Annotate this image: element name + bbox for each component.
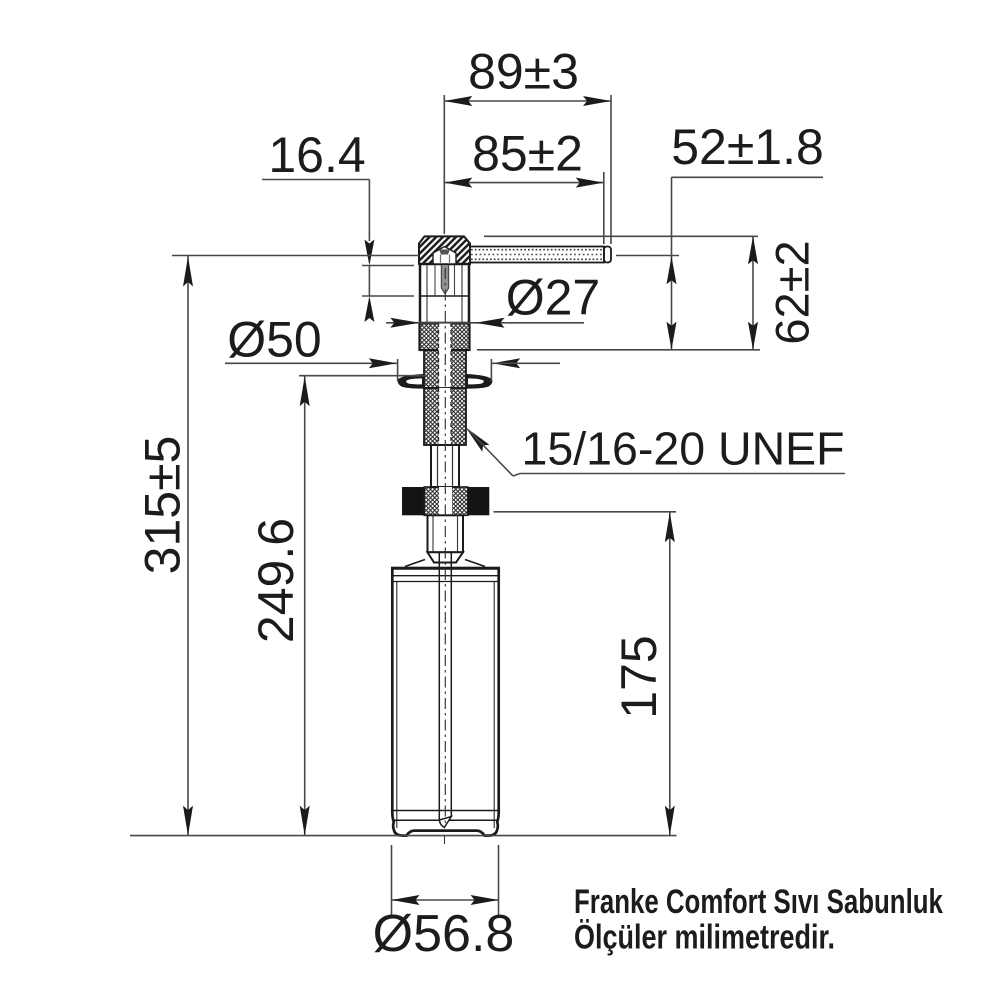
svg-text:15/16-20 UNEF: 15/16-20 UNEF (522, 423, 845, 475)
svg-text:Ø56.8: Ø56.8 (373, 905, 515, 963)
svg-text:249.6: 249.6 (248, 518, 304, 643)
svg-text:89±3: 89±3 (468, 44, 579, 100)
svg-text:175: 175 (611, 635, 667, 718)
svg-text:Ölçüler milimetredir.: Ölçüler milimetredir. (574, 917, 835, 956)
svg-text:315±5: 315±5 (135, 436, 191, 575)
svg-text:62±2: 62±2 (766, 240, 819, 344)
svg-text:Ø27: Ø27 (506, 270, 601, 326)
svg-text:16.4: 16.4 (268, 127, 365, 183)
svg-text:Franke Comfort Sıvı Sabunluk: Franke Comfort Sıvı Sabunluk (574, 884, 943, 921)
svg-text:85±2: 85±2 (472, 126, 583, 182)
svg-text:52±1.8: 52±1.8 (671, 119, 824, 175)
svg-text:Ø50: Ø50 (227, 312, 322, 368)
